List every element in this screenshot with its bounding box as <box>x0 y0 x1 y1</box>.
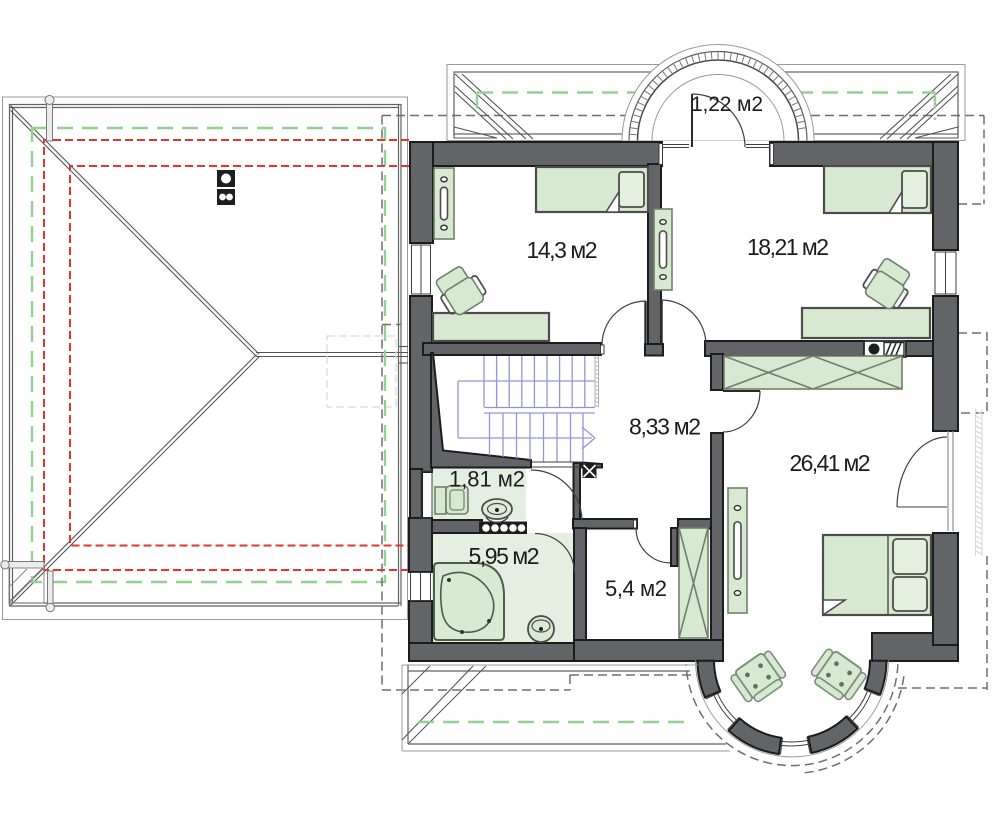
svg-text:5,4 м2: 5,4 м2 <box>605 576 667 601</box>
svg-text:18,21 м2: 18,21 м2 <box>747 234 829 260</box>
svg-text:1,81 м2: 1,81 м2 <box>449 467 525 492</box>
svg-text:5,95 м2: 5,95 м2 <box>469 543 540 569</box>
svg-text:26,41 м2: 26,41 м2 <box>790 450 871 476</box>
svg-text:1,22 м2: 1,22 м2 <box>691 93 763 116</box>
svg-text:14,3 м2: 14,3 м2 <box>527 237 598 263</box>
svg-text:8,33 м2: 8,33 м2 <box>629 414 701 440</box>
